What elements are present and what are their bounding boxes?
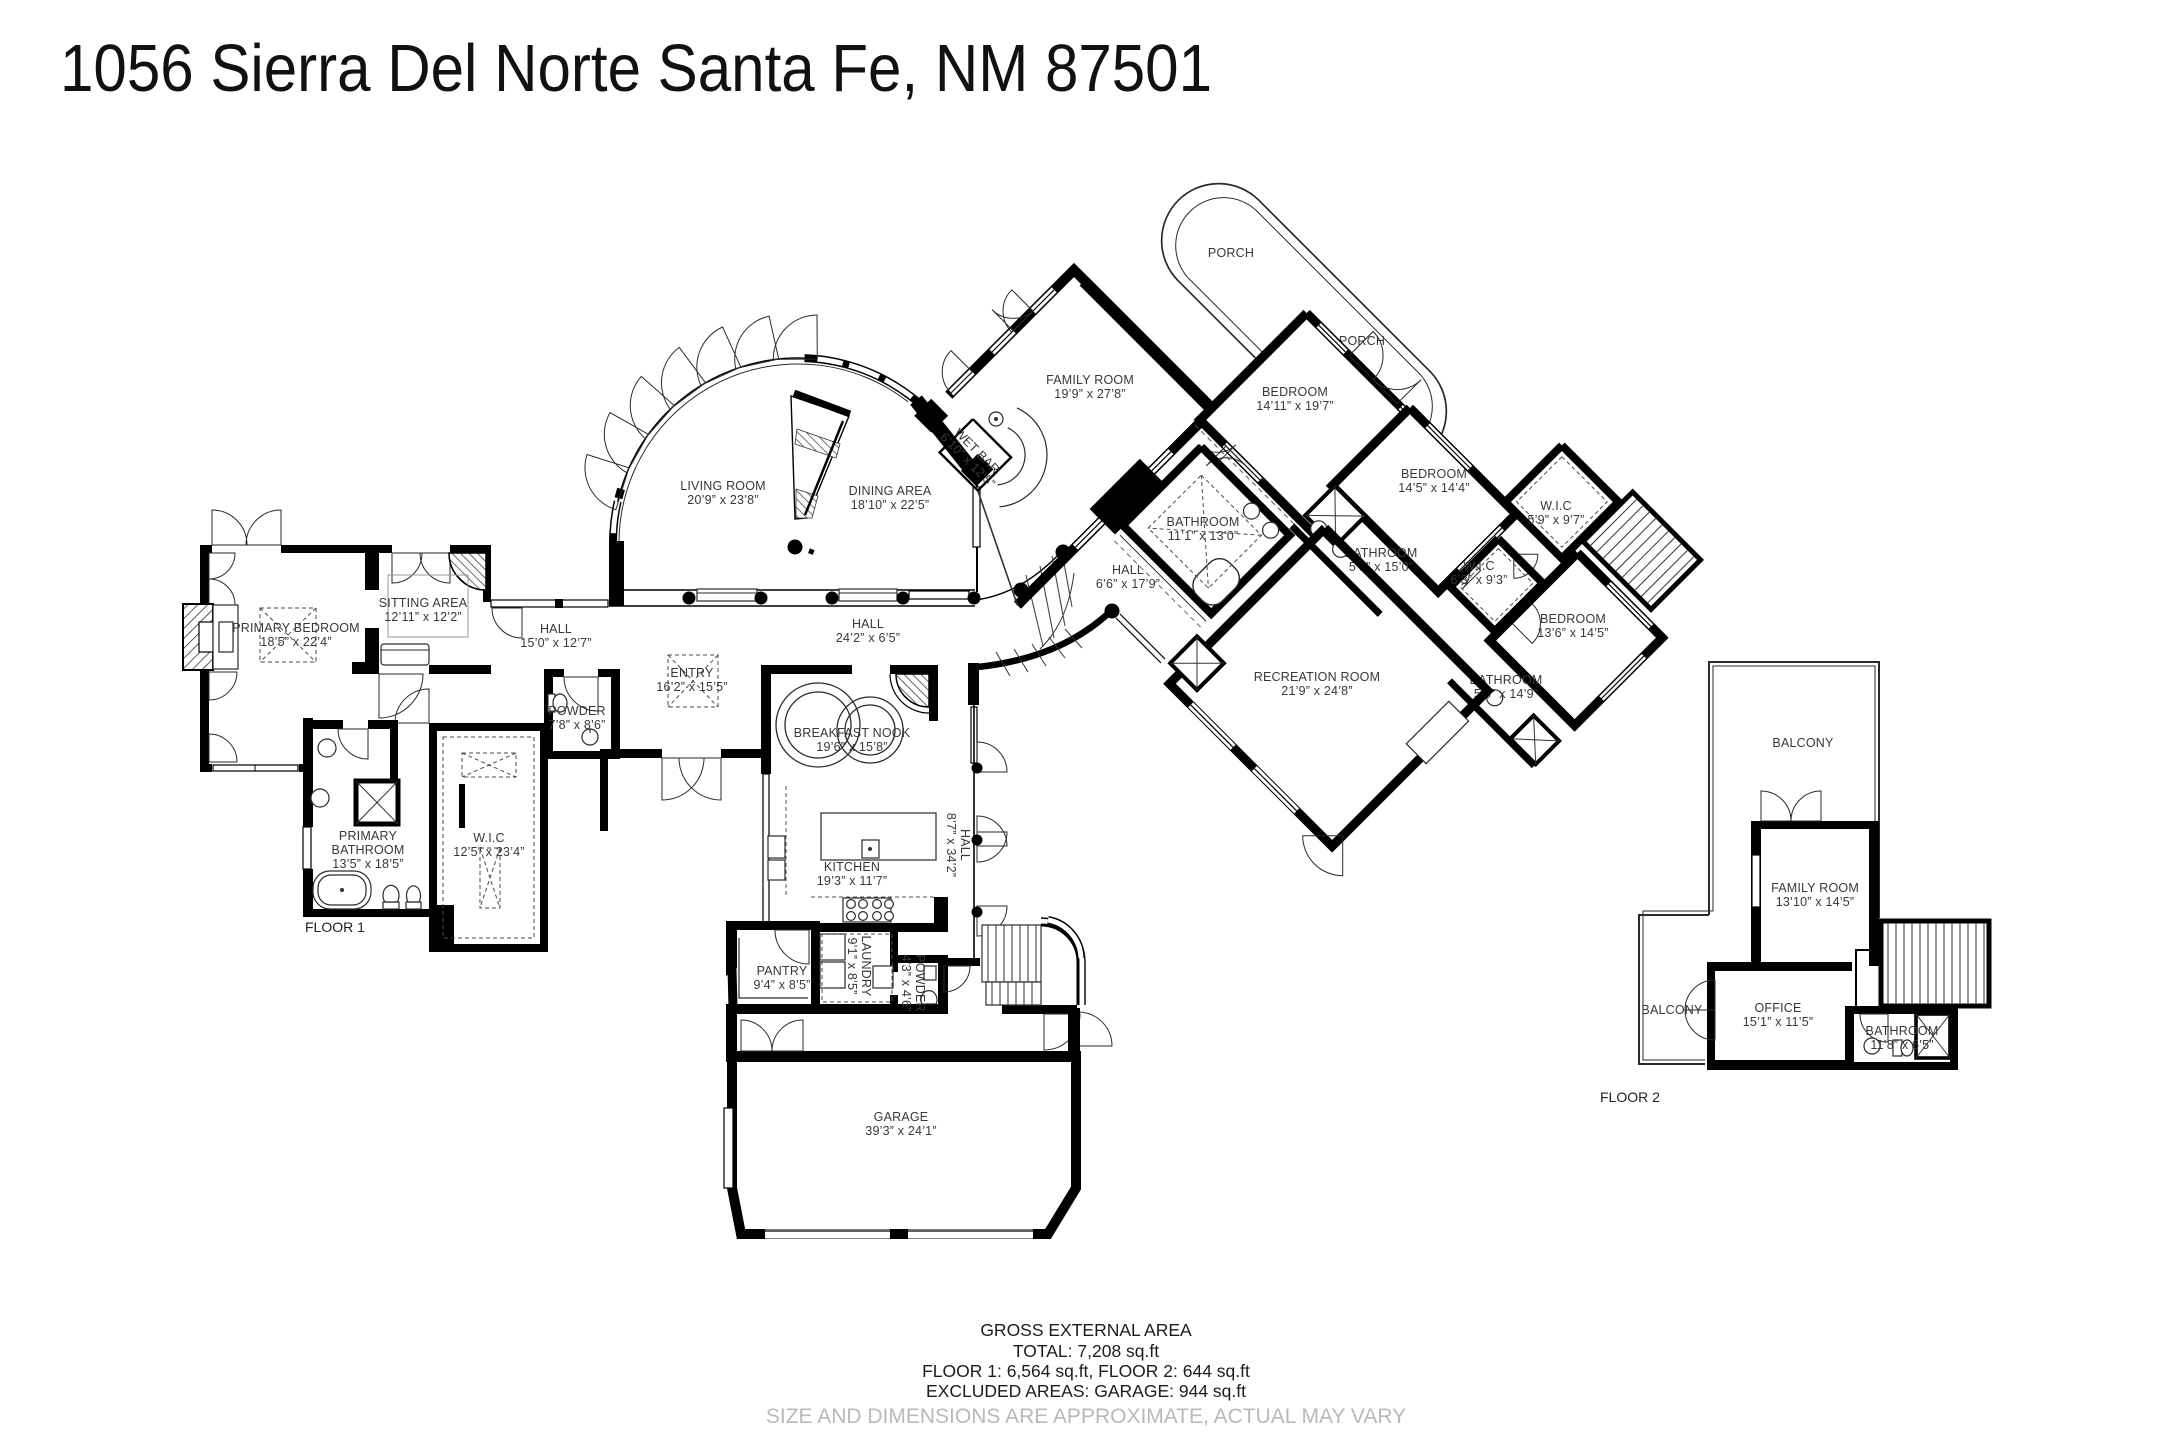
- svg-text:SITTING AREA: SITTING AREA: [379, 596, 468, 610]
- svg-text:OFFICE: OFFICE: [1754, 1001, 1801, 1015]
- svg-text:FLOOR 2: FLOOR 2: [1600, 1089, 1660, 1105]
- svg-text:BEDROOM: BEDROOM: [1262, 385, 1328, 399]
- svg-text:PANTRY: PANTRY: [757, 964, 808, 978]
- svg-text:8’7” x 34’2”: 8’7” x 34’2”: [944, 813, 958, 877]
- svg-text:PORCH: PORCH: [1208, 246, 1254, 260]
- svg-text:FAMILY ROOM: FAMILY ROOM: [1771, 881, 1859, 895]
- svg-text:FAMILY ROOM: FAMILY ROOM: [1046, 373, 1134, 387]
- svg-text:16’2” x 15’5”: 16’2” x 15’5”: [656, 680, 727, 694]
- svg-text:7’8” x 8’6”: 7’8” x 8’6”: [548, 718, 605, 732]
- svg-text:14’11” x 19’7”: 14’11” x 19’7”: [1256, 399, 1334, 413]
- svg-text:DINING AREA: DINING AREA: [849, 484, 932, 498]
- svg-text:BEDROOM: BEDROOM: [1540, 612, 1606, 626]
- svg-text:19’3” x 11’7”: 19’3” x 11’7”: [817, 874, 887, 888]
- svg-text:13’5” x 18’5”: 13’5” x 18’5”: [332, 857, 403, 871]
- svg-text:20’9” x 23’8”: 20’9” x 23’8”: [687, 493, 758, 507]
- svg-text:ENTRY: ENTRY: [670, 666, 714, 680]
- svg-text:14’5” x 14’4”: 14’5” x 14’4”: [1398, 481, 1469, 495]
- svg-text:BATHROOM: BATHROOM: [1167, 515, 1240, 529]
- svg-text:HALL: HALL: [1112, 563, 1144, 577]
- svg-text:19’9” x 27’8”: 19’9” x 27’8”: [1054, 387, 1125, 401]
- svg-text:POWDER: POWDER: [548, 704, 605, 718]
- svg-text:W.I.C: W.I.C: [473, 831, 505, 845]
- svg-text:13’10” x 14’5”: 13’10” x 14’5”: [1776, 895, 1855, 909]
- svg-text:SIZE AND DIMENSIONS ARE APPROX: SIZE AND DIMENSIONS ARE APPROXIMATE, ACT…: [766, 1405, 1406, 1428]
- svg-text:TOTAL: 7,208 sq.ft: TOTAL: 7,208 sq.ft: [1013, 1341, 1159, 1361]
- svg-text:PRIMARY: PRIMARY: [339, 829, 398, 843]
- svg-text:13’6” x 14’5”: 13’6” x 14’5”: [1537, 626, 1608, 640]
- svg-text:6’3” x 9’3”: 6’3” x 9’3”: [1450, 573, 1507, 587]
- svg-text:12’11” x 12’2”: 12’11” x 12’2”: [384, 610, 462, 624]
- svg-text:9’1” x 8’5”: 9’1” x 8’5”: [845, 937, 859, 994]
- svg-text:LAUNDRY: LAUNDRY: [859, 936, 873, 997]
- svg-text:BREAKFAST NOOK: BREAKFAST NOOK: [794, 726, 911, 740]
- svg-text:21’9” x 24’8”: 21’9” x 24’8”: [1281, 684, 1352, 698]
- svg-text:EXCLUDED AREAS: GARAGE: 944 sq: EXCLUDED AREAS: GARAGE: 944 sq.ft: [926, 1381, 1246, 1401]
- svg-text:24’2” x 6’5”: 24’2” x 6’5”: [836, 631, 900, 645]
- svg-text:W.I.C: W.I.C: [1540, 499, 1572, 513]
- svg-text:11’8” x 6’5”: 11’8” x 6’5”: [1870, 1038, 1933, 1052]
- svg-text:BATHROOM: BATHROOM: [1866, 1024, 1939, 1038]
- svg-text:HALL: HALL: [540, 622, 572, 636]
- svg-text:POWDER: POWDER: [913, 954, 927, 1011]
- svg-text:PRIMARY BEDROOM: PRIMARY BEDROOM: [232, 621, 360, 635]
- svg-text:4’3” x 4’6”: 4’3” x 4’6”: [899, 954, 913, 1011]
- svg-text:PORCH: PORCH: [1339, 334, 1385, 348]
- svg-text:19’6” x 15’8”: 19’6” x 15’8”: [816, 740, 887, 754]
- svg-text:BALCONY: BALCONY: [1772, 736, 1834, 750]
- svg-text:HALL: HALL: [958, 829, 972, 861]
- svg-text:FLOOR 1: 6,564 sq.ft, FLOOR 2:: FLOOR 1: 6,564 sq.ft, FLOOR 2: 644 sq.ft: [922, 1361, 1250, 1381]
- svg-text:18’10” x 22’5”: 18’10” x 22’5”: [851, 498, 930, 512]
- svg-text:HALL: HALL: [852, 617, 884, 631]
- svg-text:15’0” x 12’7”: 15’0” x 12’7”: [520, 636, 591, 650]
- svg-text:KITCHEN: KITCHEN: [824, 860, 880, 874]
- svg-text:18’5” x 22’4”: 18’5” x 22’4”: [260, 635, 331, 649]
- svg-text:GROSS EXTERNAL AREA: GROSS EXTERNAL AREA: [980, 1320, 1192, 1340]
- svg-text:BATHROOM: BATHROOM: [332, 843, 405, 857]
- svg-text:9’4” x 8’5”: 9’4” x 8’5”: [753, 978, 810, 992]
- svg-text:LIVING ROOM: LIVING ROOM: [680, 479, 766, 493]
- svg-text:FLOOR 1: FLOOR 1: [305, 919, 365, 935]
- svg-text:RECREATION ROOM: RECREATION ROOM: [1254, 670, 1380, 684]
- svg-text:W.I.C: W.I.C: [1463, 559, 1495, 573]
- svg-text:5’9” x 9’7”: 5’9” x 9’7”: [1527, 513, 1584, 527]
- svg-text:12’5” x 23’4”: 12’5” x 23’4”: [453, 845, 524, 859]
- svg-text:1056 Sierra Del Norte Santa Fe: 1056 Sierra Del Norte Santa Fe, NM 87501: [60, 31, 1212, 106]
- svg-text:6’6” x 17’9”: 6’6” x 17’9”: [1096, 577, 1160, 591]
- svg-text:11’1” x 13’0”: 11’1” x 13’0”: [1168, 529, 1238, 543]
- svg-text:GARAGE: GARAGE: [874, 1110, 929, 1124]
- svg-text:15’1” x 11’5”: 15’1” x 11’5”: [1743, 1015, 1813, 1029]
- svg-text:39’3” x 24’1”: 39’3” x 24’1”: [865, 1124, 936, 1138]
- svg-text:BEDROOM: BEDROOM: [1401, 467, 1467, 481]
